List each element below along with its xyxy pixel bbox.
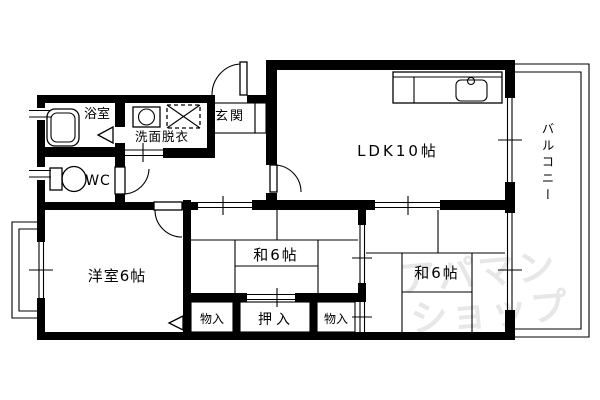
oshiire-sliding-front [247,288,295,307]
wall-ldk-top [266,60,515,70]
wall-bath-bottom [37,147,125,157]
floor-plan-page: アパマン ショップ [0,0,600,400]
watermark: アパマン ショップ [397,244,572,341]
sink-basin [139,109,155,125]
wall-left-3 [37,180,45,242]
wall-japanese-divider-bottom [358,283,366,302]
closet-door-arrow-icon [169,316,183,330]
door-leaf [154,202,182,210]
western-room-window [29,242,53,298]
western-room-door [154,202,182,237]
door-arc [155,210,182,237]
ldk-door [270,165,301,192]
door-arc [123,169,149,194]
wall-top-entrance-right [247,95,268,103]
kitchen-sink [456,80,487,101]
hall-japanese-sliding-door [198,196,252,215]
wall-right-1 [505,60,515,98]
wall-hall-bottom [252,200,277,210]
wc-window [29,171,51,178]
washroom-sliding-door [124,143,163,162]
wall-western-east [183,200,191,340]
label-closet-left: 物入 [200,312,224,326]
wall-left-1 [37,95,45,108]
toilet-bowl [62,167,86,192]
label-western-room: 洋室6帖 [88,267,147,285]
wc-door [115,167,149,194]
ldk-window [498,98,522,182]
wall-closet-top-1 [183,293,247,302]
sliding-doors [124,143,440,332]
door-leaf [270,165,277,192]
wall-bath-right-1 [115,103,125,127]
fusuma-between-japanese-rooms [352,225,372,283]
label-bath: 浴室 [84,106,110,122]
label-entrance: 玄関 [215,109,245,124]
wall-top-left [37,95,212,103]
wall-japanese-divider-top [358,200,366,225]
label-japanese-room-right: 和6帖 [414,264,460,282]
shoe-cabinet [255,103,266,133]
door-arc [212,64,240,95]
floor-plan-svg: アパマン ショップ [0,0,600,400]
wall-corridor-bottom-1 [37,202,155,210]
label-washroom: 洗面脱衣 [135,129,189,144]
door-leaf [115,167,125,194]
wall-closet-divider-2 [310,302,317,332]
bathtub-outer [47,109,79,146]
label-closet-right: 物入 [324,312,348,326]
door-arc [274,165,301,192]
toilet-tank [50,168,62,190]
toilet-icon [50,167,86,192]
wall-hall-ldk-1 [266,60,277,165]
label-ldk: LDK10帖 [357,142,439,160]
label-japanese-room-center: 和6帖 [253,246,299,264]
sink-icon [133,107,160,127]
wall-closet-divider-1 [233,302,240,332]
wall-bath-right-2 [115,143,125,167]
door-leaf [240,62,247,95]
wall-bottom [37,332,515,340]
kitchen-counter-icon [393,72,502,103]
label-balcony: バルコニー [540,122,555,205]
wall-washroom-right [207,95,215,158]
wall-ldk-bottom-2 [440,200,515,210]
kitchen-faucet [468,78,475,85]
label-oshiire: 押入 [258,312,294,328]
washing-machine-icon [167,105,200,128]
bathtub-inner [51,113,75,142]
entrance-door [212,62,247,95]
wall-left-2 [37,120,45,167]
label-wc: WC [85,173,111,189]
wall-closet-top-2 [295,293,358,302]
bath-folding-door-icon [98,127,113,143]
ldk-japanese-sliding-door [375,196,440,215]
bathtub-icon [47,109,79,146]
sink-counter [133,107,160,127]
